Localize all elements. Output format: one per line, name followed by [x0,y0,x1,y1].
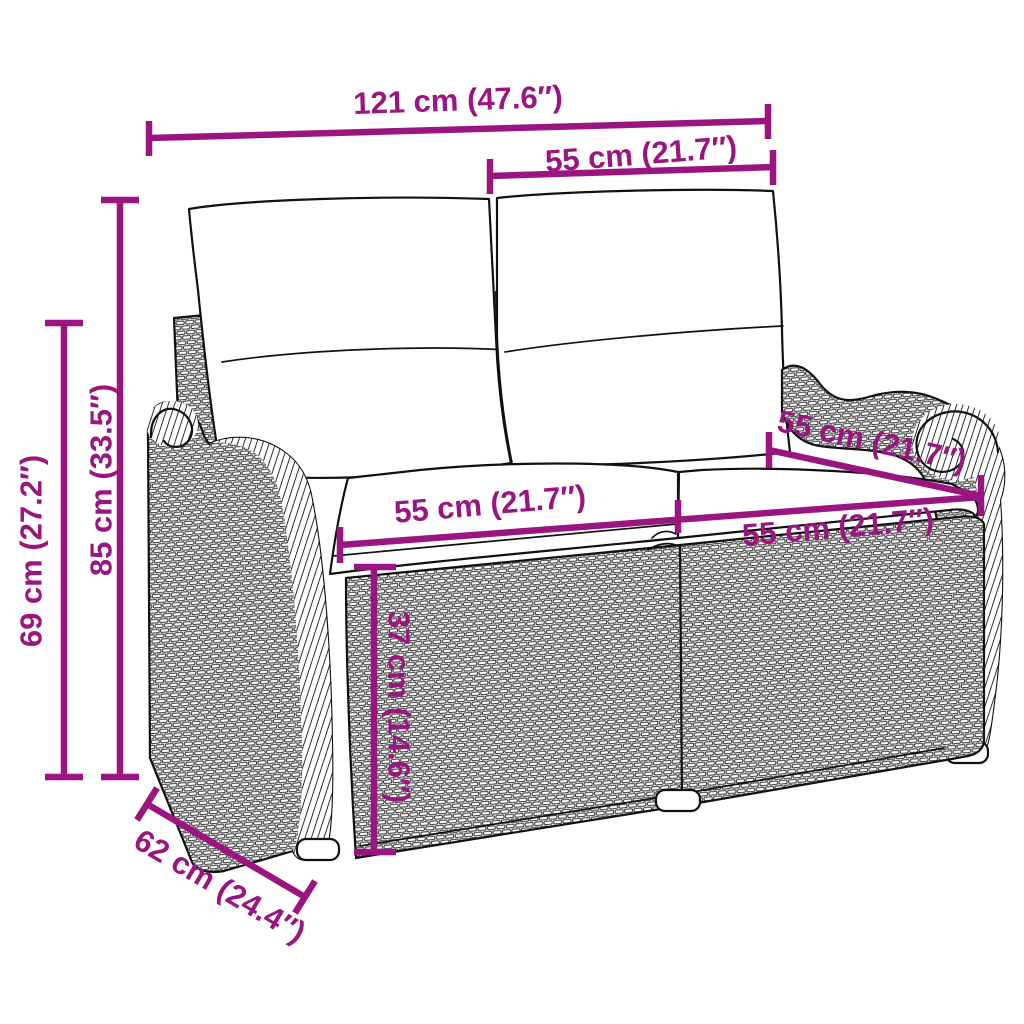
dim-seat-height-label: 37 cm (14.6″) [382,611,417,803]
left-armrest-foot [297,839,339,860]
base-center-foot [656,790,700,811]
back-cushion-left [189,198,511,478]
dim-overall-height-label: 85 cm (33.5″) [84,384,119,576]
dim-overall-width-label: 121 cm (47.6″) [353,79,564,121]
dim-backrest-height-label: 69 cm (27.2″) [14,455,49,647]
back-cushions [189,190,790,478]
bench-dimension-diagram: 121 cm (47.6″) 55 cm (21.7″) 85 cm (33.5… [0,0,1024,1024]
dimension-diagram-page: 121 cm (47.6″) 55 cm (21.7″) 85 cm (33.5… [0,0,1024,1024]
